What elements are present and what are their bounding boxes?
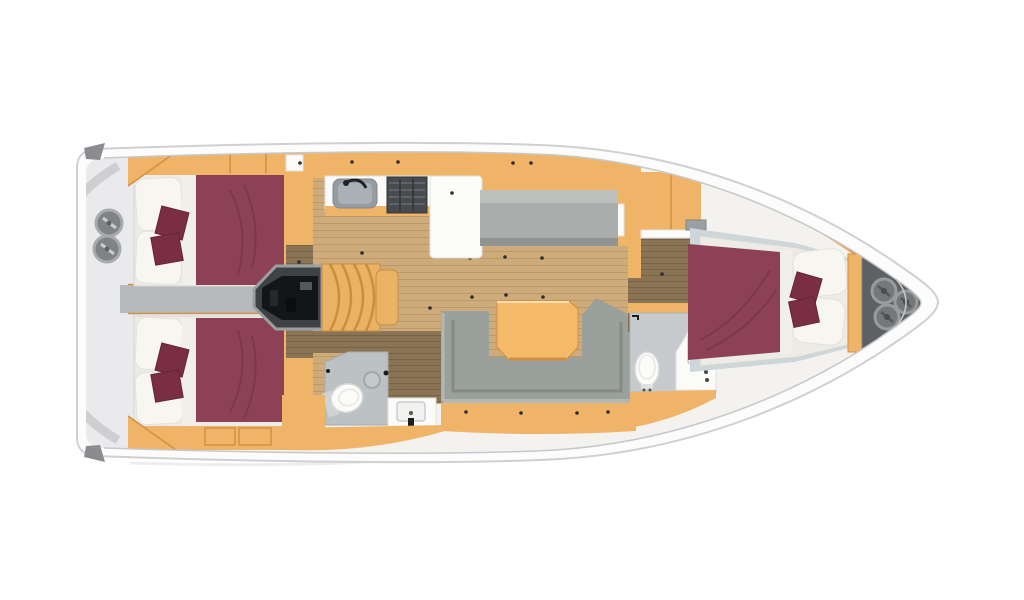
salon-table (497, 301, 578, 360)
aft-head-vanity (388, 398, 436, 428)
counter-peninsula (430, 176, 482, 258)
companionway-stairs (322, 264, 398, 331)
cushion (789, 297, 820, 328)
salon-settee-bench (480, 190, 618, 246)
vent-grille (686, 220, 706, 230)
cushion (151, 233, 183, 265)
galley-stove (387, 177, 427, 213)
bow-cleat-icon (875, 305, 899, 329)
shower-drain (364, 372, 380, 388)
winch-icon (96, 210, 122, 236)
aft-walkway (120, 285, 258, 313)
wardrobe-block (282, 395, 325, 428)
forward-bulkhead (628, 150, 641, 278)
bow-cleat-icon (872, 279, 896, 303)
bow-trim-strip (848, 254, 862, 352)
cushion (151, 370, 183, 402)
winch-icon (94, 236, 120, 262)
yacht-floorplan-image (0, 0, 1024, 600)
top-step (376, 270, 398, 325)
cabinet-below-sofa (441, 403, 636, 434)
galley-sink (333, 179, 377, 208)
interior (39, 140, 945, 465)
aft-cabin-starboard (128, 316, 313, 450)
floorplan-svg (0, 0, 1024, 600)
